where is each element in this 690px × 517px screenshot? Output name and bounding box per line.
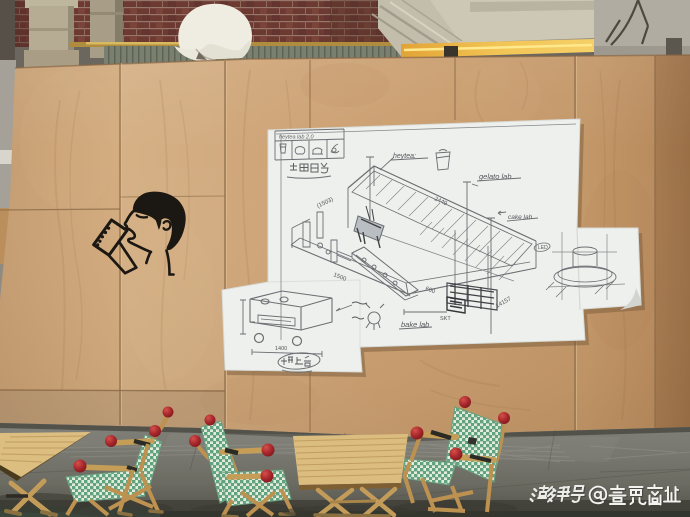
- svg-text:heytea lab 2.0: heytea lab 2.0: [279, 135, 314, 141]
- svg-text:SKT: SKT: [440, 316, 451, 322]
- svg-text:1400: 1400: [275, 346, 287, 352]
- svg-text:LED: LED: [538, 245, 548, 251]
